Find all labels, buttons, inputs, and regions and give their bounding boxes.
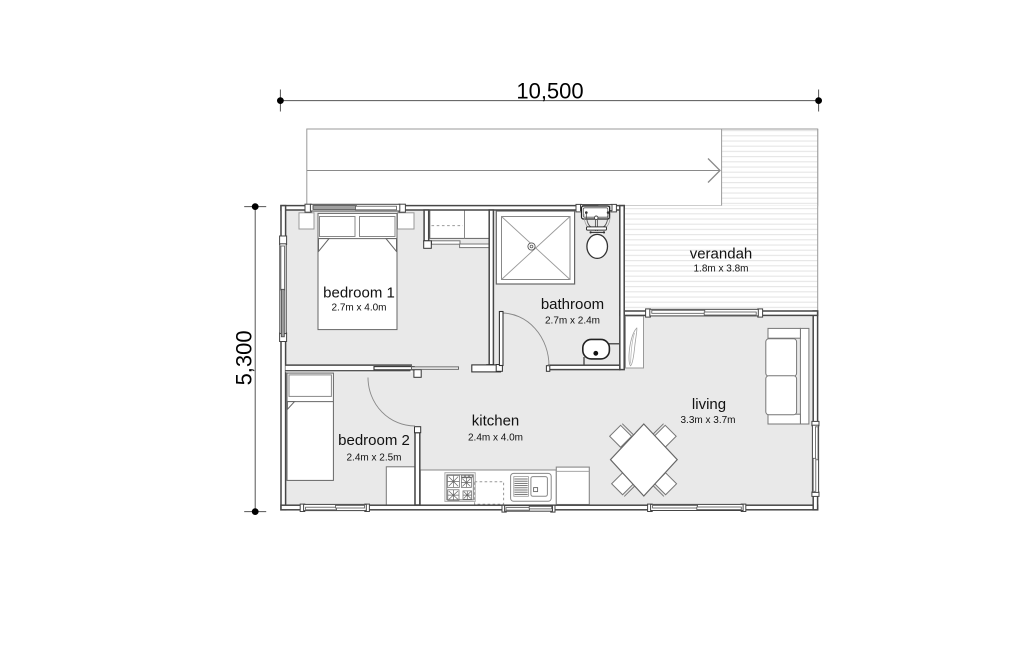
- svg-text:1.8m x 3.8m: 1.8m x 3.8m: [693, 264, 748, 275]
- svg-text:3.3m x 3.7m: 3.3m x 3.7m: [680, 415, 735, 426]
- svg-text:10,500: 10,500: [516, 79, 583, 104]
- svg-text:verandah: verandah: [690, 246, 753, 263]
- svg-text:2.7m x 2.4m: 2.7m x 2.4m: [545, 316, 600, 327]
- svg-text:bedroom 1: bedroom 1: [323, 285, 395, 302]
- svg-text:bathroom: bathroom: [541, 296, 604, 313]
- svg-text:bedroom 2: bedroom 2: [338, 432, 410, 449]
- svg-text:kitchen: kitchen: [472, 413, 520, 430]
- svg-text:2.4m x 2.5m: 2.4m x 2.5m: [346, 453, 401, 464]
- svg-text:2.4m x 4.0m: 2.4m x 4.0m: [468, 433, 523, 444]
- svg-text:living: living: [692, 396, 726, 413]
- svg-text:2.7m x 4.0m: 2.7m x 4.0m: [331, 303, 386, 314]
- svg-text:5,300: 5,300: [232, 330, 257, 385]
